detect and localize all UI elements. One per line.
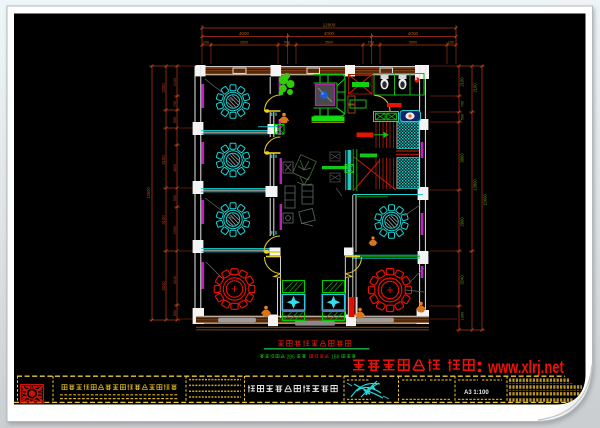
- svg-text:500: 500: [173, 117, 177, 123]
- svg-text:13500: 13500: [146, 187, 151, 199]
- svg-text:3800: 3800: [459, 153, 464, 163]
- svg-text:2900: 2900: [459, 217, 464, 227]
- svg-text:2100: 2100: [459, 77, 464, 87]
- svg-text:1300: 1300: [460, 312, 464, 320]
- svg-text:A3 1:100: A3 1:100: [464, 390, 489, 396]
- svg-text:2900: 2900: [173, 226, 177, 234]
- svg-text:2100: 2100: [472, 83, 477, 93]
- svg-text:500: 500: [173, 195, 177, 201]
- svg-text:3500: 3500: [325, 41, 333, 45]
- svg-text:13800: 13800: [472, 179, 477, 191]
- svg-text:www.xlrj.net: www.xlrj.net: [487, 358, 564, 378]
- svg-text:15600: 15600: [482, 194, 487, 206]
- svg-text:500: 500: [173, 310, 177, 316]
- svg-text:12000: 12000: [323, 23, 336, 28]
- svg-text:100: 100: [448, 41, 454, 45]
- svg-text:3500: 3500: [240, 41, 248, 45]
- svg-text:2100: 2100: [173, 78, 177, 86]
- svg-text:2200: 2200: [161, 83, 166, 93]
- svg-text:3240: 3240: [173, 276, 177, 284]
- svg-text:500: 500: [368, 41, 374, 45]
- svg-text:100: 100: [203, 41, 209, 45]
- svg-text:186: 186: [331, 354, 340, 360]
- svg-text:700: 700: [173, 101, 177, 107]
- svg-text:286: 286: [287, 354, 296, 360]
- svg-text:3100: 3100: [161, 215, 166, 225]
- svg-text:4000: 4000: [408, 31, 419, 36]
- svg-text:3340: 3340: [161, 281, 166, 291]
- svg-text:700: 700: [460, 101, 464, 107]
- svg-text:500: 500: [460, 114, 464, 120]
- svg-text:3240: 3240: [459, 275, 464, 285]
- svg-text:4000: 4000: [239, 31, 250, 36]
- svg-text:3100: 3100: [161, 155, 166, 165]
- svg-text:500: 500: [284, 41, 290, 45]
- svg-text:3800: 3800: [173, 164, 177, 172]
- svg-text:3500: 3500: [409, 41, 417, 45]
- svg-text:4000: 4000: [324, 31, 335, 36]
